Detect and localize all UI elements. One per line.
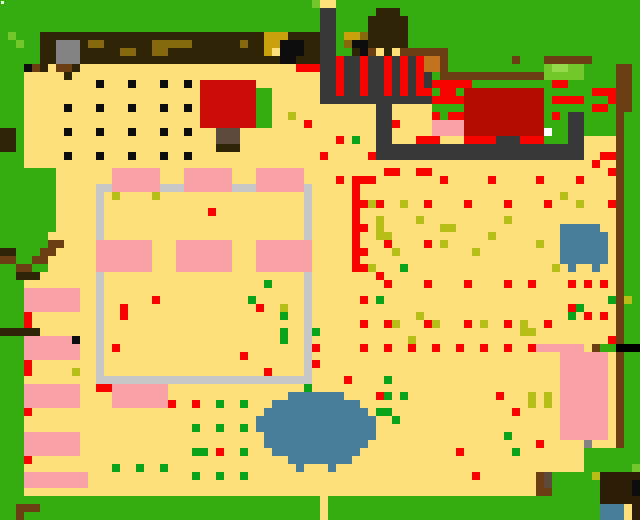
left-flower-beds[interactable] — [24, 288, 88, 488]
game-map — [0, 0, 640, 520]
dark-path[interactable] — [376, 104, 584, 160]
striped-stall-shed[interactable] — [320, 56, 432, 104]
fenced-pen[interactable] — [96, 184, 312, 384]
pink-tower[interactable] — [560, 344, 608, 440]
red-wall-strip[interactable] — [352, 184, 368, 272]
soil-plot-grid[interactable] — [64, 80, 192, 160]
red-barn[interactable] — [200, 80, 256, 128]
village-bush[interactable] — [544, 64, 584, 80]
bottom-right-rock[interactable] — [600, 472, 640, 496]
middle-flower-beds[interactable] — [96, 240, 312, 272]
dirt-road-top[interactable] — [40, 32, 320, 64]
large-pond[interactable] — [256, 392, 376, 472]
stone-block[interactable] — [56, 40, 80, 64]
bottom-path-gap[interactable] — [320, 496, 328, 520]
small-pond[interactable] — [560, 224, 608, 272]
bottom-right-water[interactable] — [600, 504, 624, 520]
lower-flower-bed[interactable] — [112, 384, 168, 408]
